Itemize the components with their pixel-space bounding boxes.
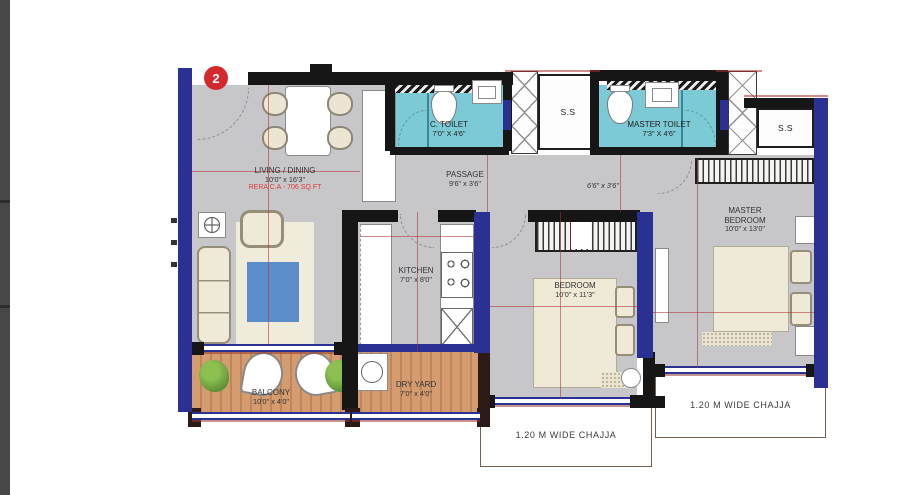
- chajja-bottom: 1.20 M WIDE CHAJJA: [480, 403, 652, 467]
- balcony-railing: [192, 412, 350, 420]
- round-side-table: [621, 368, 641, 388]
- bedroom-label: BEDROOM 10'0" x 11'3": [530, 281, 620, 299]
- wall-segment: [590, 147, 728, 155]
- washbasin-icon: [645, 82, 679, 108]
- room-dim: 6'6" x 3'6": [558, 182, 648, 191]
- sink-icon: [441, 308, 473, 346]
- toilet-door: [720, 100, 728, 130]
- dry-yard-railing: [352, 412, 480, 420]
- dining-chair: [262, 92, 288, 116]
- unit-number-badge: 2: [204, 66, 228, 90]
- room-dim: 7'0" x 4'0": [372, 390, 460, 399]
- wall-segment: [653, 364, 665, 377]
- wc-tank: [434, 85, 454, 92]
- dimension-line: [560, 212, 561, 398]
- wall-segment: [310, 64, 332, 73]
- outline-line: [716, 70, 762, 72]
- wall-navy-right: [814, 98, 828, 388]
- wall-segment: [744, 98, 814, 108]
- dining-table: [285, 86, 331, 156]
- dimension-line: [653, 312, 814, 313]
- wall-segment: [334, 342, 348, 355]
- coffee-rug-blue: [247, 262, 299, 322]
- chajja-right: 1.20 M WIDE CHAJJA: [655, 372, 826, 438]
- service-shaft-left: S.S: [538, 74, 598, 150]
- toilet-partition: [681, 85, 683, 149]
- kitchen-label: KITCHEN 7'0" x 8'0": [380, 266, 452, 284]
- wall-navy-left: [178, 68, 192, 412]
- c-toilet-label: C. TOILET 7'0" X 4'6": [398, 120, 500, 138]
- wall-segment: [192, 342, 204, 355]
- wall-segment: [390, 147, 509, 155]
- dining-chair: [327, 126, 353, 150]
- wall-segment: [590, 72, 599, 151]
- wall-segment: [528, 210, 640, 222]
- room-dim: 10'0" x 13'0": [714, 225, 776, 234]
- fan-icon: [202, 215, 222, 235]
- basin-inner: [652, 88, 672, 102]
- master-toilet-label: MASTER TOILET 7'3" X 4'6": [600, 120, 718, 138]
- dimension-line: [697, 158, 698, 368]
- wall-segment: [478, 350, 490, 410]
- wardrobe-gap: [571, 219, 591, 249]
- wall-segment: [385, 72, 395, 151]
- washbasin-icon: [472, 80, 502, 104]
- wall-tick: [171, 218, 177, 223]
- side-table: [198, 212, 226, 238]
- duct-x-icon: [729, 127, 756, 154]
- wall-segment: [342, 210, 398, 222]
- chajja-right-label: 1.20 M WIDE CHAJJA: [690, 400, 791, 410]
- bed-pillow: [615, 324, 635, 356]
- room-dim: 10'0" x 4'0": [225, 398, 317, 407]
- dimension-line: [490, 306, 637, 307]
- bedside-rug: [702, 332, 772, 346]
- basin-inner: [478, 86, 496, 99]
- window: [204, 344, 334, 352]
- sofa: [197, 246, 231, 344]
- passage-label: PASSAGE 9'6" x 3'6": [420, 170, 510, 188]
- master-bed: [713, 246, 789, 332]
- outline-line: [505, 70, 600, 72]
- duct-x-icon: [512, 99, 537, 126]
- armchair: [240, 210, 284, 248]
- duct-shaft: [511, 71, 538, 154]
- dimension-line: [268, 85, 269, 345]
- ss-right-label: S.S: [778, 123, 793, 133]
- balcony-label: BALCONY 10'0" x 4'0": [225, 388, 317, 406]
- bed-pillow: [790, 292, 812, 326]
- wall-tick: [171, 240, 177, 245]
- wall-segment: [643, 396, 665, 408]
- duct-x-icon: [512, 72, 537, 99]
- dry-yard-label: DRY YARD 7'0" x 4'0": [372, 380, 460, 398]
- kitchen-counter-left: [360, 224, 392, 350]
- room-name: MASTER BEDROOM: [714, 206, 776, 225]
- window: [665, 366, 806, 374]
- outline-line: [744, 95, 828, 97]
- duct-x-icon: [512, 126, 537, 153]
- wall-segment: [630, 395, 643, 408]
- floor-plan: 1.20 M WIDE CHAJJA 1.20 M WIDE CHAJJA S.…: [0, 0, 902, 495]
- room-dim: 7'0" x 8'0": [380, 276, 452, 285]
- wall-navy: [474, 212, 490, 353]
- ss-left-label: S.S: [561, 107, 576, 117]
- room-dim: 7'0" X 4'6": [398, 130, 500, 139]
- room-dim: 10'0" x 16'3": [230, 176, 340, 185]
- toilet-partition: [427, 85, 429, 149]
- wall-segment: [342, 210, 358, 352]
- dining-chair: [327, 92, 353, 116]
- living-dining-label: LIVING / DINING 10'0" x 16'3" RERA C.A -…: [230, 166, 340, 193]
- dining-chair: [262, 126, 288, 150]
- duct-shaft: [728, 71, 757, 155]
- floor-plan-page: 1.20 M WIDE CHAJJA 1.20 M WIDE CHAJJA S.…: [0, 0, 902, 495]
- wall-segment: [342, 352, 358, 410]
- kitchen-window-band: [358, 344, 474, 352]
- wall-segment: [590, 70, 728, 81]
- wall-segment: [438, 210, 476, 222]
- toilet-door: [503, 100, 511, 130]
- master-bedroom-label: MASTER BEDROOM 10'0" x 13'0": [714, 206, 776, 234]
- wc-tank: [610, 85, 630, 92]
- window: [495, 397, 630, 405]
- wall-navy: [637, 212, 653, 358]
- wall-tick: [171, 262, 177, 267]
- room-dim: 10'0" x 11'3": [530, 291, 620, 300]
- passage-ext-label: 6'6" x 3'6": [558, 182, 648, 191]
- unit-number: 2: [212, 71, 219, 86]
- bed-pillow: [790, 250, 812, 284]
- chajja-bottom-label: 1.20 M WIDE CHAJJA: [516, 430, 617, 440]
- rera-area: RERA C.A - 706 SQ.FT: [230, 184, 340, 192]
- service-shaft-right: S.S: [757, 108, 814, 148]
- master-wardrobe: [695, 158, 814, 184]
- room-dim: 9'6" x 3'6": [420, 180, 510, 189]
- room-dim: 7'3" X 4'6": [600, 130, 718, 139]
